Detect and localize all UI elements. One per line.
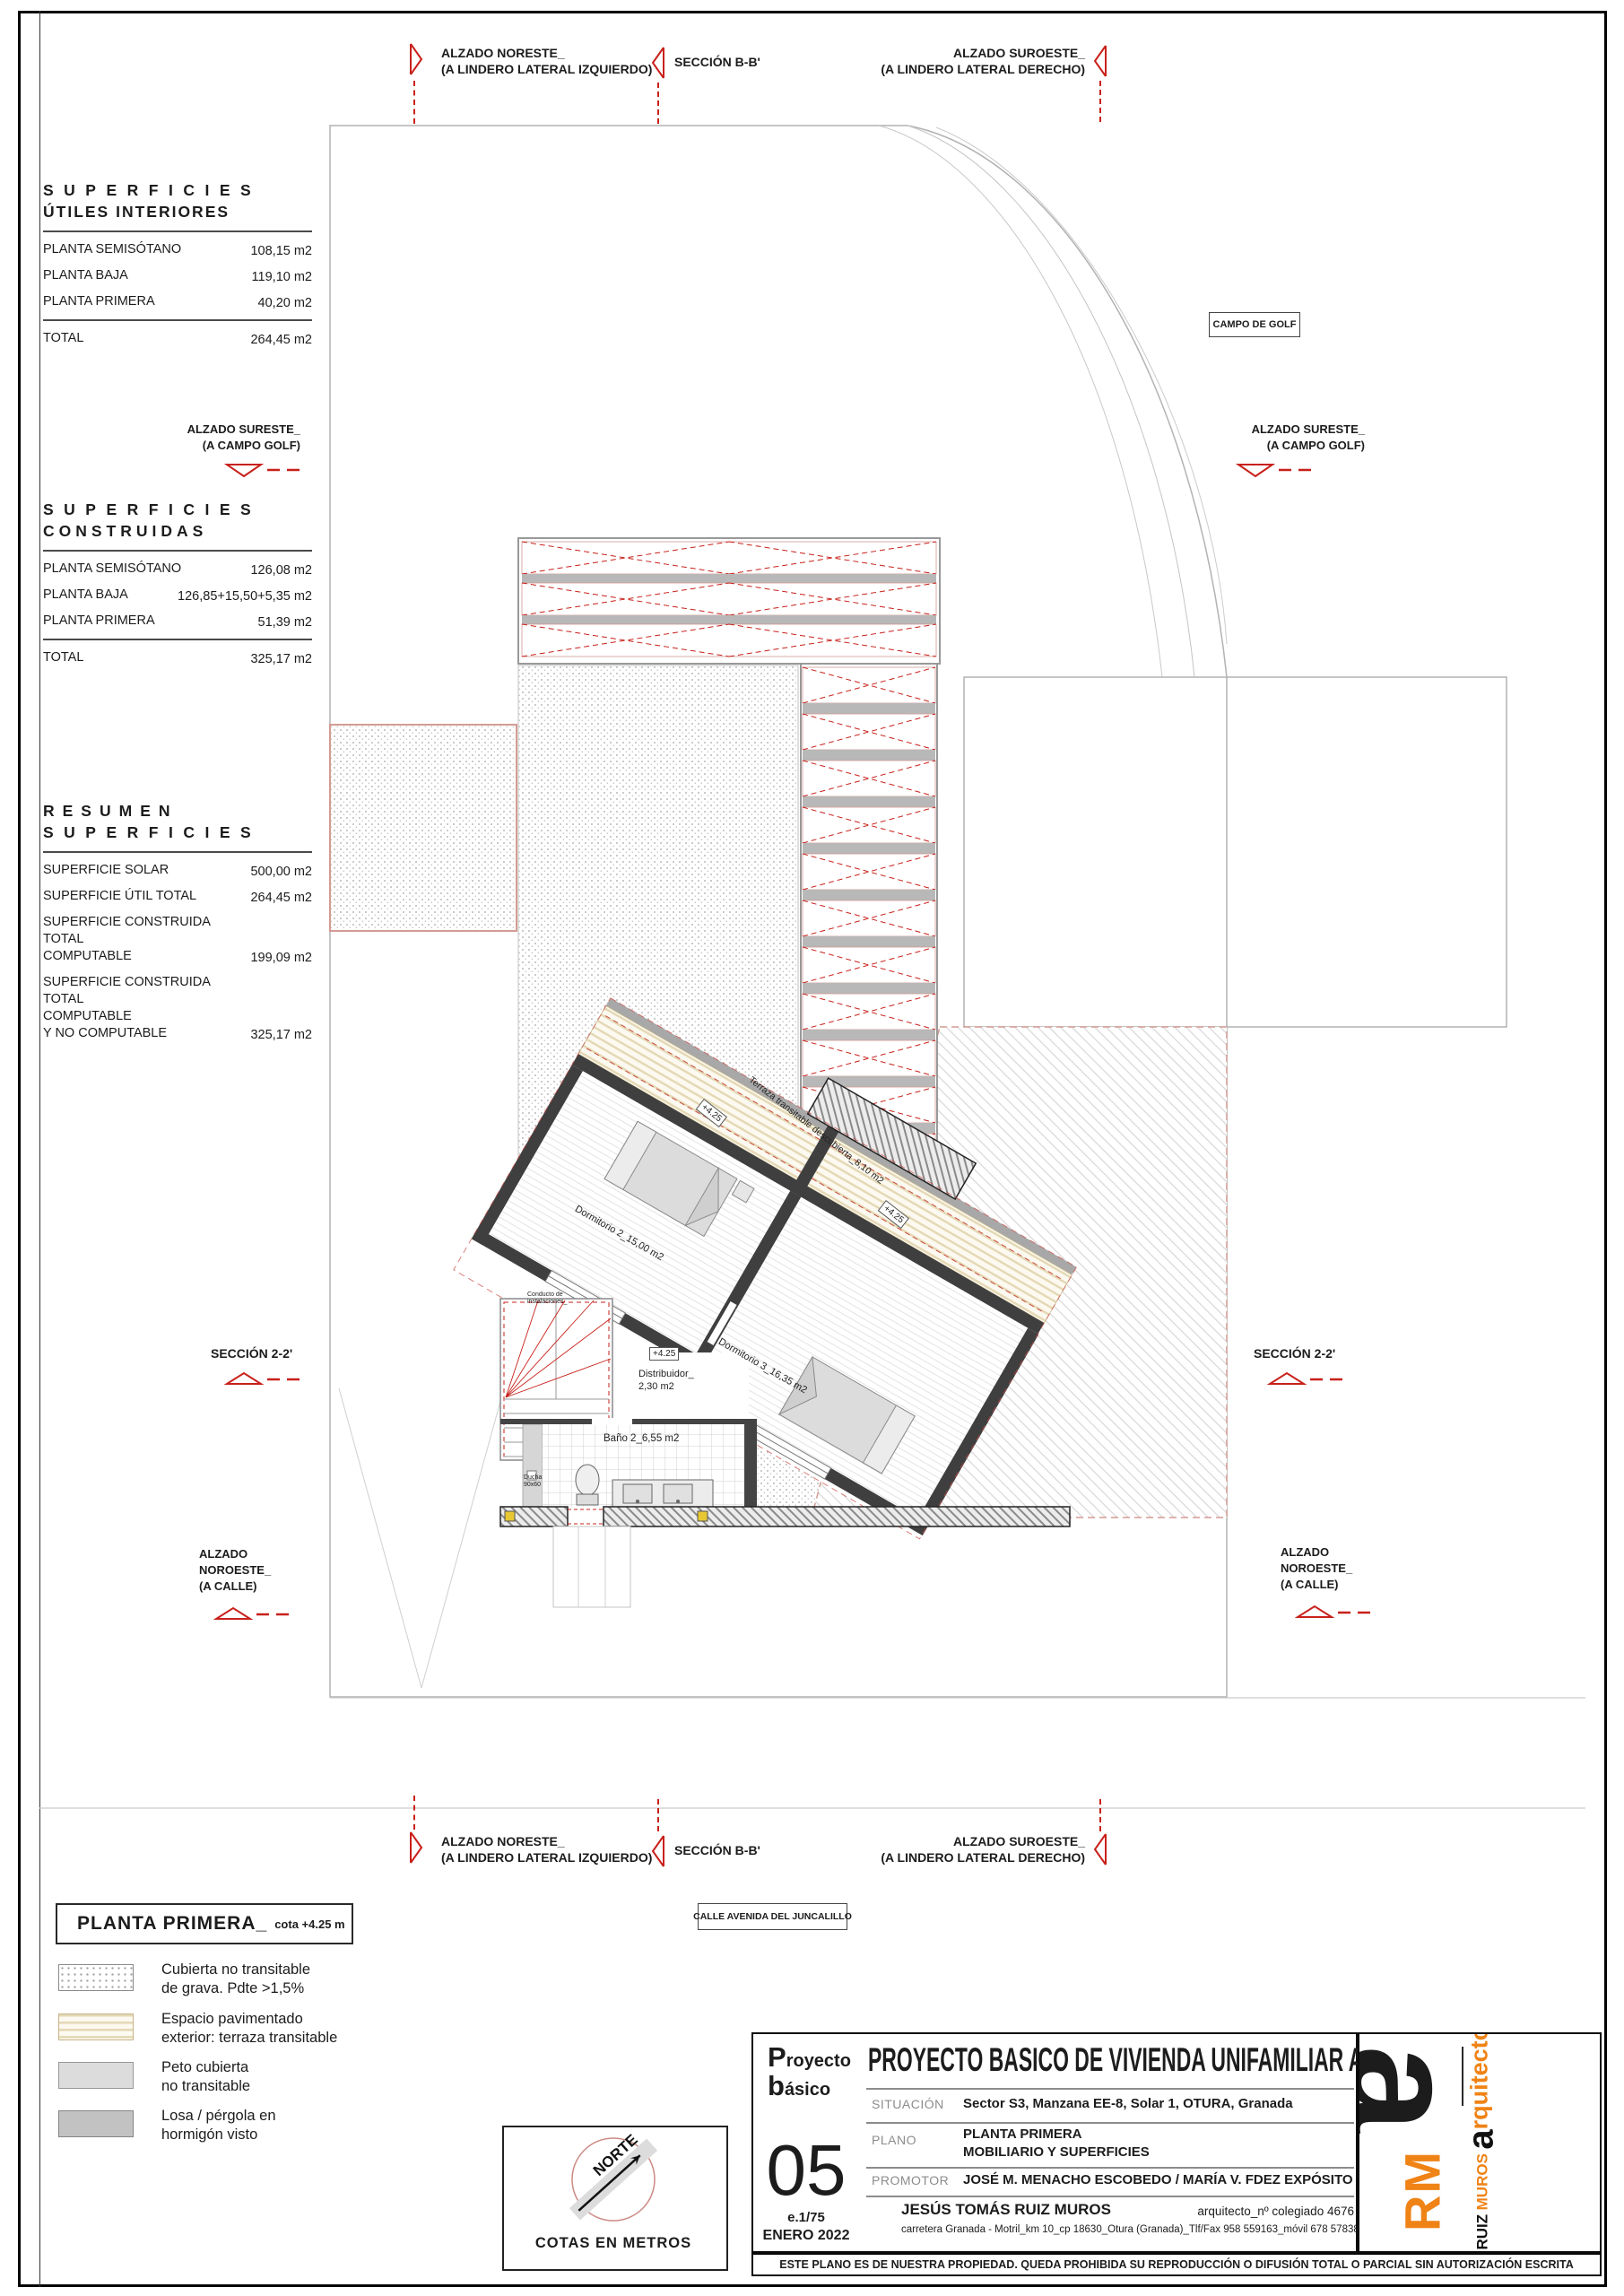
plano-value-1: PLANTA PRIMERA bbox=[963, 2126, 1082, 2142]
legend-item-label: Espacio pavimentado exterior: terraza tr… bbox=[161, 2010, 337, 2048]
table-row: PLANTA SEMISÓTANO108,15 m2 bbox=[43, 241, 312, 258]
label-alzado-suroeste-bottom: ALZADO SUROESTE_(A LINDERO LATERAL DEREC… bbox=[861, 1833, 1085, 1865]
label-seccion-22-right: SECCIÓN 2-2' bbox=[1254, 1345, 1335, 1361]
section-arrow-left-icon bbox=[650, 45, 666, 81]
label-campo-de-golf: CAMPO DE GOLF bbox=[1209, 312, 1300, 337]
label-distribuidor: Distribuidor_ 2,30 m2 bbox=[638, 1368, 694, 1393]
table-subtitle: ÚTILES INTERIORES bbox=[43, 201, 312, 222]
elevation-arrow-right-icon bbox=[408, 41, 424, 77]
label-conducto: Conducto de instalaciones_ bbox=[527, 1291, 567, 1306]
table-title: SUPERFICIES bbox=[43, 179, 312, 201]
copyright-disclaimer: ESTE PLANO ES DE NUESTRA PROPIEDAD. QUED… bbox=[751, 2253, 1602, 2276]
label-seccion-bb-top: SECCIÓN B-B' bbox=[674, 54, 760, 70]
elevation-tri-up-icon bbox=[213, 1604, 294, 1623]
plano-label: PLANO bbox=[872, 2133, 916, 2147]
table-subtitle: CONSTRUIDAS bbox=[43, 520, 312, 542]
elevation-arrow-right-icon bbox=[408, 1830, 424, 1865]
table-total-row: TOTAL264,45 m2 bbox=[43, 330, 312, 347]
plano-value-2: MOBILIARIO Y SUPERFICIES bbox=[963, 2144, 1150, 2160]
cotas-en-metros-label: COTAS EN METROS bbox=[502, 2235, 725, 2252]
table-superficies-utiles: SUPERFICIES ÚTILES INTERIORES PLANTA SEM… bbox=[43, 179, 312, 356]
label-alzado-suroeste-top: ALZADO SUROESTE_(A LINDERO LATERAL DEREC… bbox=[861, 45, 1085, 77]
label-seccion-bb-bottom: SECCIÓN B-B' bbox=[674, 1842, 760, 1858]
situacion-label: SITUACIÓN bbox=[872, 2097, 944, 2111]
table-row: PLANTA PRIMERA51,39 m2 bbox=[43, 613, 312, 630]
level-marker: +4.25 bbox=[649, 1347, 679, 1361]
section-dash-line bbox=[1099, 81, 1101, 122]
drawing-sheet: ALZADO NORESTE_(A LINDERO LATERAL IZQUIE… bbox=[0, 0, 1624, 2296]
table-row: PLANTA BAJA119,10 m2 bbox=[43, 267, 312, 284]
doc-type-line1: Proyecto bbox=[768, 2041, 851, 2074]
legend-swatch-paved bbox=[58, 2013, 134, 2040]
section-dash-line bbox=[413, 81, 415, 124]
north-compass-icon: NORTE bbox=[504, 2127, 723, 2233]
logo-brand-text: RUIZ MUROS arquitectos bbox=[1462, 2039, 1502, 2250]
architect-address: carretera Granada - Motril_km 10_cp 1863… bbox=[901, 2224, 1365, 2235]
section-dash-line bbox=[657, 83, 659, 124]
table-total-row: TOTAL325,17 m2 bbox=[43, 649, 312, 666]
section-dash-line bbox=[413, 1796, 415, 1830]
label-calle-avenida: CALLE AVENIDA DEL JUNCALILLO bbox=[698, 1903, 847, 1930]
elevation-arrow-left-icon bbox=[1092, 43, 1108, 79]
table-title: SUPERFICIES bbox=[43, 499, 312, 520]
architect-name: JESÚS TOMÁS RUIZ MUROS bbox=[901, 2201, 1111, 2219]
table-row: PLANTA SEMISÓTANO126,08 m2 bbox=[43, 561, 312, 578]
legend-swatch-losa bbox=[58, 2110, 134, 2137]
table-row: PLANTA BAJA126,85+15,50+5,35 m2 bbox=[43, 587, 312, 604]
label-alzado-noroeste-left: ALZADO NOROESTE_ (A CALLE) bbox=[199, 1546, 271, 1595]
sheet-number: 05 bbox=[753, 2135, 859, 2206]
legend-swatch-gravel bbox=[58, 1964, 134, 1991]
promotor-label: PROMOTOR bbox=[872, 2173, 949, 2187]
elevation-tri-down-icon bbox=[1236, 461, 1316, 481]
elevation-tri-down-icon bbox=[224, 461, 305, 481]
label-alzado-noreste-top: ALZADO NORESTE_(A LINDERO LATERAL IZQUIE… bbox=[441, 45, 652, 77]
project-title: PROYECTO BASICO DE VIVIENDA UNIFAMILIAR … bbox=[868, 2041, 1440, 2079]
title-block: Proyecto básico PROYECTO BASICO DE VIVIE… bbox=[751, 2032, 1358, 2253]
table-row: SUPERFICIE CONSTRUIDA TOTAL COMPUTABLE Y… bbox=[43, 974, 312, 1042]
section-dash-line bbox=[657, 1799, 659, 1831]
label-ducha: Ducha 90x60 bbox=[524, 1474, 542, 1489]
table-title: RESUMEN bbox=[43, 800, 312, 822]
table-row: SUPERFICIE SOLAR500,00 m2 bbox=[43, 862, 312, 879]
plan-title: PLANTA PRIMERA_ bbox=[77, 1913, 267, 1935]
label-alzado-noroeste-right: ALZADO NOROESTE_ (A CALLE) bbox=[1281, 1544, 1352, 1593]
label-alzado-noreste-bottom: ALZADO NORESTE_(A LINDERO LATERAL IZQUIE… bbox=[441, 1833, 652, 1865]
doc-type-line2: básico bbox=[768, 2070, 830, 2102]
section-tri-up-icon bbox=[1267, 1369, 1348, 1388]
logo-box: a RM RUIZ MUROS arquitectos bbox=[1358, 2032, 1602, 2253]
table-row: PLANTA PRIMERA40,20 m2 bbox=[43, 293, 312, 310]
sheet-date: ENERO 2022 bbox=[753, 2228, 859, 2244]
table-resumen-superficies: RESUMEN SUPERFICIES SUPERFICIE SOLAR500,… bbox=[43, 800, 312, 1051]
label-alzado-sureste-left: ALZADO SURESTE_ (A CAMPO GOLF) bbox=[175, 422, 300, 454]
table-row: SUPERFICIE ÚTIL TOTAL264,45 m2 bbox=[43, 888, 312, 905]
elevation-arrow-left-icon bbox=[1092, 1831, 1108, 1867]
plan-title-note: cota +4.25 m bbox=[274, 1918, 344, 1931]
architect-college: arquitecto_nº colegiado 4676 bbox=[1130, 2205, 1354, 2218]
table-superficies-construidas: SUPERFICIES CONSTRUIDAS PLANTA SEMISÓTAN… bbox=[43, 499, 312, 675]
section-arrow-left-icon bbox=[650, 1833, 666, 1869]
legend-swatch-peto bbox=[58, 2062, 134, 2089]
sheet-scale: e.1/75 bbox=[753, 2210, 859, 2225]
legend-item-label: Peto cubierta no transitable bbox=[161, 2058, 250, 2096]
logo-a-glyph: a bbox=[1358, 2044, 1477, 2134]
label-bano-2: Baño 2_6,55 m2 bbox=[604, 1433, 679, 1444]
elevation-tri-up-icon bbox=[1295, 1602, 1376, 1622]
section-tri-up-icon bbox=[224, 1369, 305, 1388]
label-alzado-sureste-right: ALZADO SURESTE_ (A CAMPO GOLF) bbox=[1239, 422, 1365, 454]
plan-title-box: PLANTA PRIMERA_ cota +4.25 m bbox=[56, 1903, 353, 1944]
table-subtitle: SUPERFICIES bbox=[43, 822, 312, 843]
label-seccion-22-left: SECCIÓN 2-2' bbox=[211, 1345, 292, 1361]
promotor-value: JOSÉ M. MENACHO ESCOBEDO / MARÍA V. FDEZ… bbox=[963, 2172, 1353, 2187]
section-dash-line bbox=[1099, 1799, 1101, 1831]
table-row: SUPERFICIE CONSTRUIDA TOTAL COMPUTABLE19… bbox=[43, 914, 312, 965]
legend-item-label: Cubierta no transitable de grava. Pdte >… bbox=[161, 1961, 310, 1998]
logo-rm: RM bbox=[1394, 2148, 1452, 2234]
legend-item-label: Losa / pérgola en hormigón visto bbox=[161, 2107, 276, 2144]
situacion-value: Sector S3, Manzana EE-8, Solar 1, OTURA,… bbox=[963, 2096, 1293, 2111]
